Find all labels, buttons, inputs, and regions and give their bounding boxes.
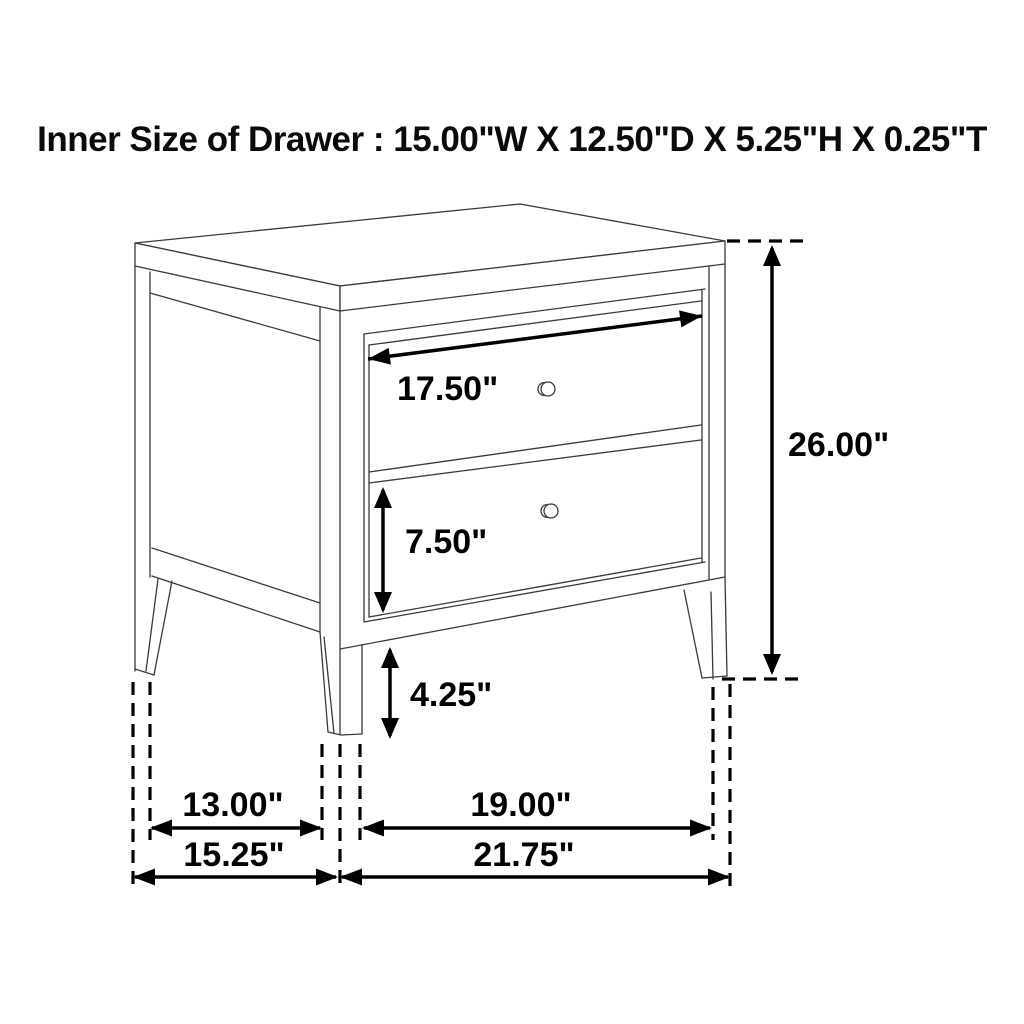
front-face-frame [340,264,725,734]
dim-label-bottom-drawer-height: 7.50" [405,523,487,561]
dim-label-front-width: 21.75" [473,836,574,874]
dim-drawer-width: 17.50" [368,310,702,408]
dim-label-leg-clearance: 4.25" [410,676,492,714]
drawer-fronts [369,301,701,617]
dimension-diagram-page: Inner Size of Drawer : 15.00"W X 12.50"D… [0,0,1024,1024]
dim-leg-clearance: 4.25" [381,647,492,739]
top-slab [135,204,725,311]
drawer-knob-bottom [541,504,558,518]
dim-front-leg-span: 19.00" [362,786,712,837]
nightstand-drawing [135,204,727,735]
rear-left-leg [135,579,172,675]
dim-front-width: 21.75" [340,836,730,886]
drawer-knob-top [538,382,555,396]
front-right-leg [684,577,727,679]
dim-label-side-depth: 15.25" [183,836,284,874]
dim-side-depth: 15.25" [133,836,338,886]
left-side-panel [135,266,320,671]
dim-label-side-leg-span: 13.00" [182,786,283,824]
front-center-leg [320,632,362,735]
dim-overall-height: 26.00" [763,245,889,675]
dim-label-drawer-width: 17.50" [397,370,498,408]
nightstand-dimension-drawing: 17.50" 26.00" 7.50" 4.25" 13.00" [0,0,1024,1024]
dim-label-overall-height: 26.00" [788,426,889,464]
dim-bottom-drawer-height: 7.50" [374,487,487,613]
dim-label-front-leg-span: 19.00" [470,786,571,824]
dim-side-leg-span: 13.00" [150,786,322,837]
